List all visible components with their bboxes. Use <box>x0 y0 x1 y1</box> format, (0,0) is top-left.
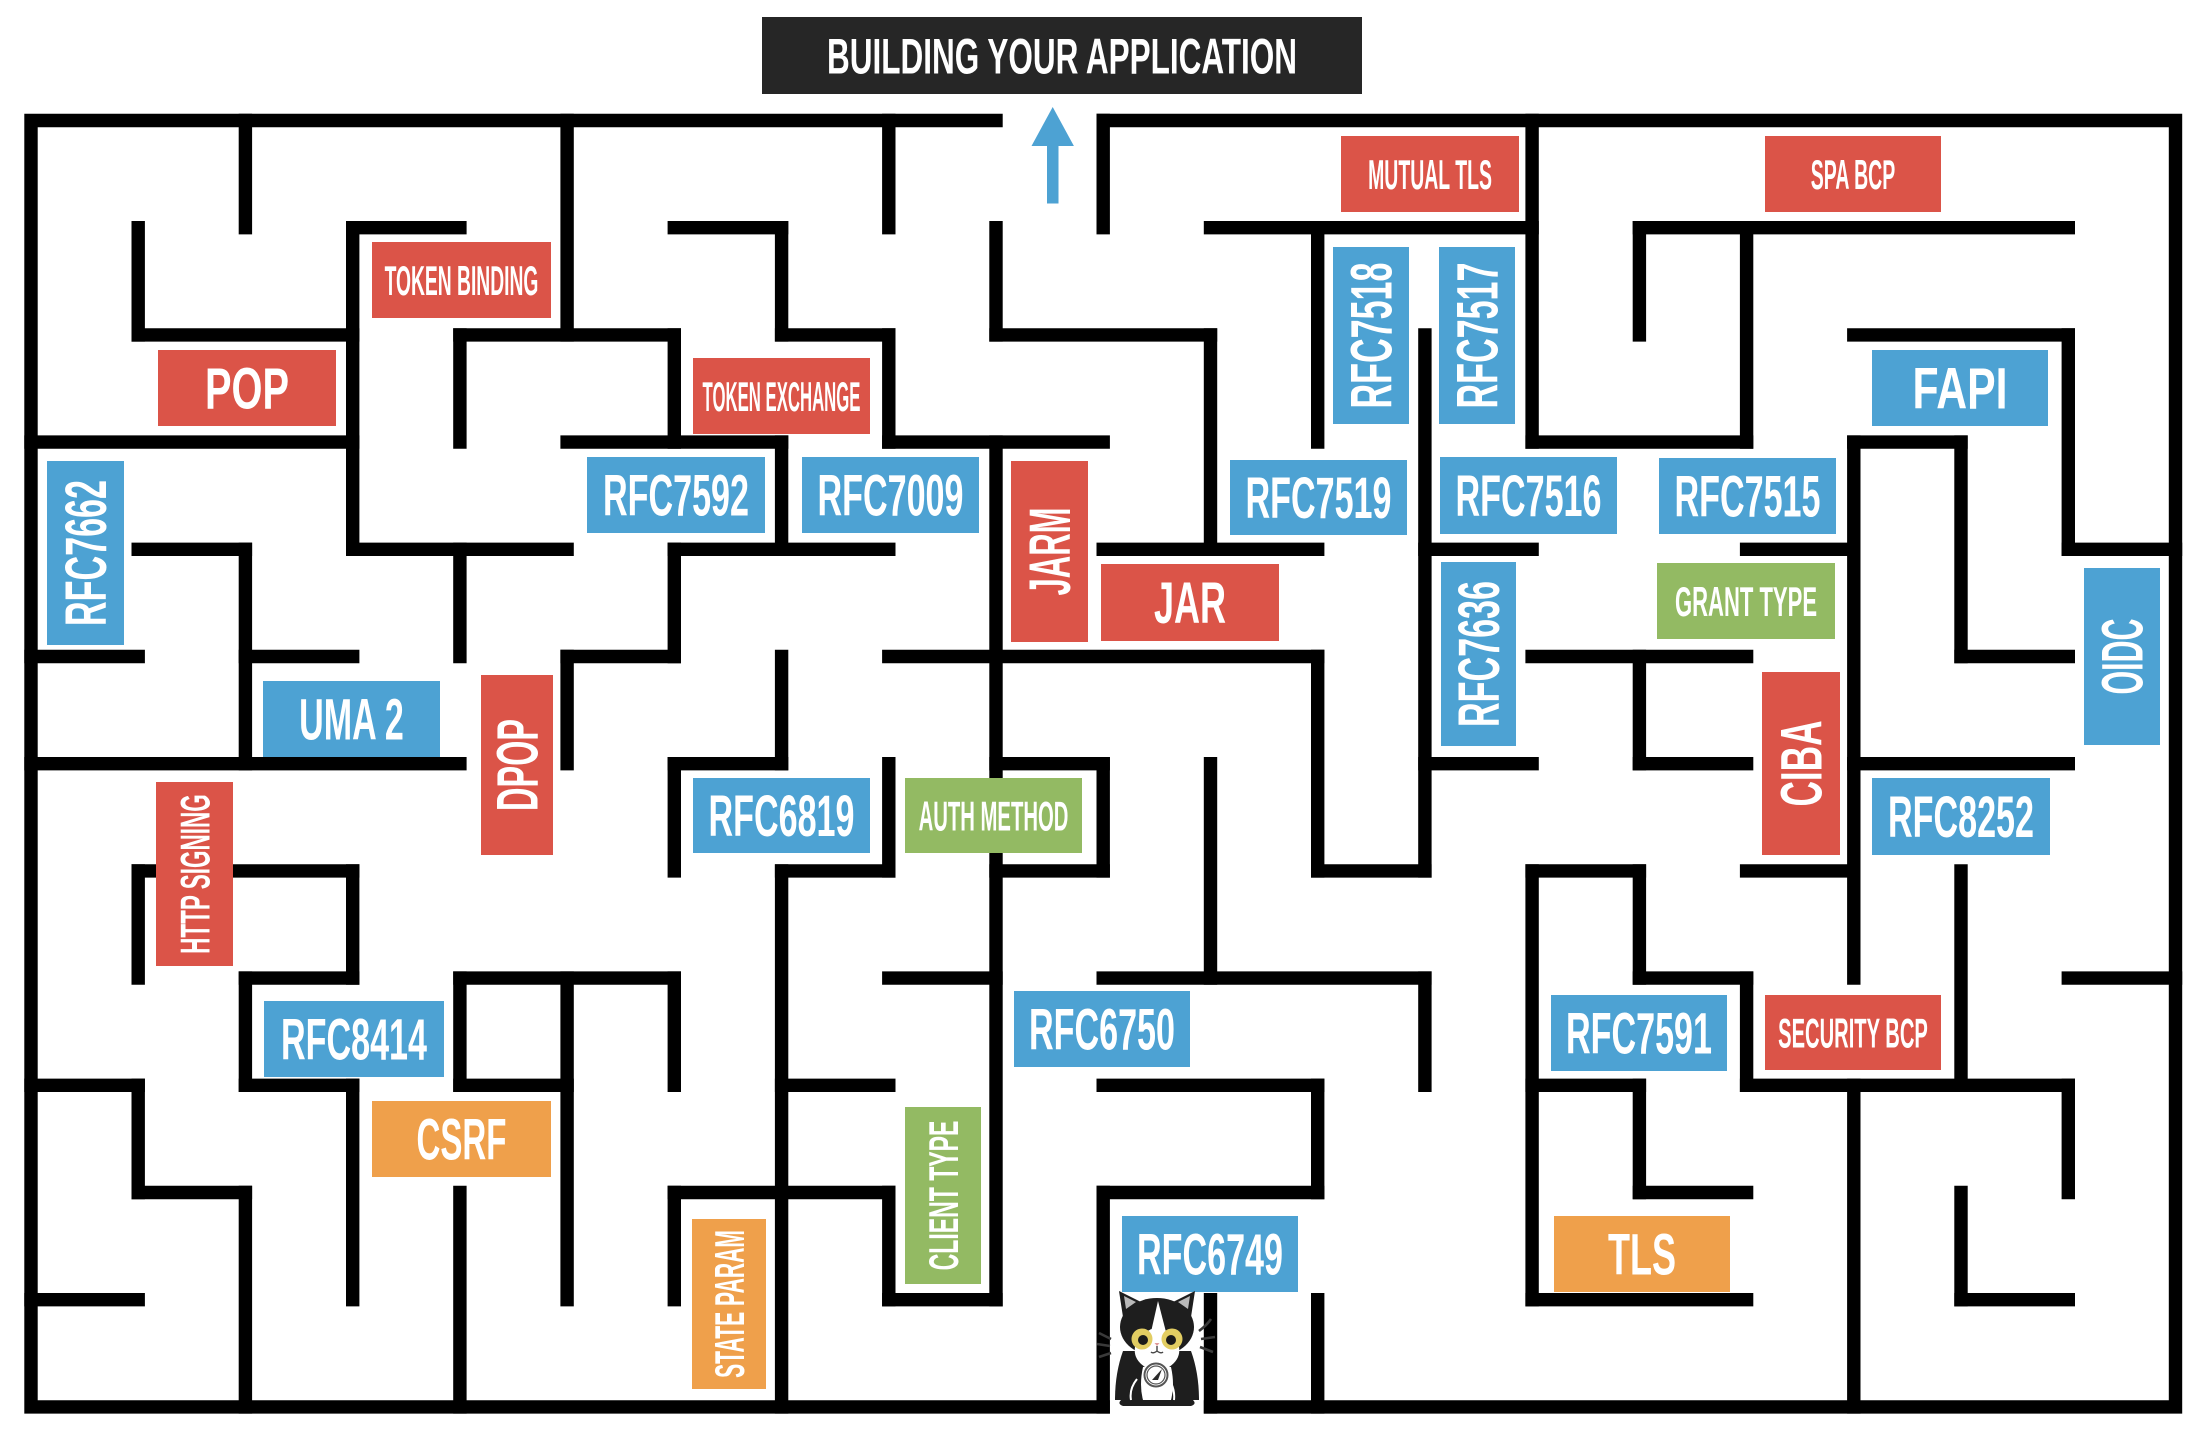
svg-text:RFC7009: RFC7009 <box>818 465 964 530</box>
svg-text:RFC7636: RFC7636 <box>1448 581 1513 727</box>
svg-text:RFC7662: RFC7662 <box>55 480 120 626</box>
svg-text:RFC7591: RFC7591 <box>1566 1003 1712 1068</box>
svg-text:AUTH METHOD: AUTH METHOD <box>919 792 1069 839</box>
svg-text:RFC7519: RFC7519 <box>1246 467 1392 532</box>
svg-text:RFC8414: RFC8414 <box>281 1009 427 1074</box>
svg-text:HTTP SIGNING: HTTP SIGNING <box>173 794 219 954</box>
svg-text:RFC8252: RFC8252 <box>1888 786 2034 851</box>
svg-text:MUTUAL TLS: MUTUAL TLS <box>1368 150 1492 197</box>
svg-text:RFC7518: RFC7518 <box>1341 263 1406 409</box>
svg-text:JARM: JARM <box>1018 508 1083 596</box>
svg-text:GRANT TYPE: GRANT TYPE <box>1675 580 1817 626</box>
svg-text:CSRF: CSRF <box>417 1108 507 1173</box>
svg-text:RFC6750: RFC6750 <box>1029 999 1175 1064</box>
svg-text:OIDC: OIDC <box>2090 619 2155 695</box>
svg-text:CLIENT TYPE: CLIENT TYPE <box>921 1121 968 1271</box>
svg-text:RFC6749: RFC6749 <box>1137 1224 1283 1289</box>
svg-text:SPA BCP: SPA BCP <box>1811 151 1895 198</box>
svg-text:JAR: JAR <box>1154 572 1226 637</box>
svg-text:RFC6819: RFC6819 <box>709 785 855 850</box>
svg-text:BUILDING YOUR APPLICATION: BUILDING YOUR APPLICATION <box>827 28 1297 84</box>
svg-text:RFC7517: RFC7517 <box>1447 263 1512 409</box>
svg-text:STATE PARAM: STATE PARAM <box>707 1230 754 1378</box>
svg-text:TLS: TLS <box>1608 1223 1676 1288</box>
svg-text:RFC7515: RFC7515 <box>1675 466 1821 531</box>
svg-text:FAPI: FAPI <box>1913 356 2008 421</box>
svg-text:CIBA: CIBA <box>1771 720 1835 806</box>
svg-text:TOKEN BINDING: TOKEN BINDING <box>385 256 539 304</box>
svg-text:TOKEN EXCHANGE: TOKEN EXCHANGE <box>703 373 861 420</box>
svg-text:RFC7516: RFC7516 <box>1456 465 1602 530</box>
svg-text:POP: POP <box>205 356 289 421</box>
svg-text:UMA 2: UMA 2 <box>299 688 404 753</box>
svg-text:SECURITY BCP: SECURITY BCP <box>1778 1009 1928 1056</box>
svg-text:DPOP: DPOP <box>485 719 550 811</box>
svg-text:RFC7592: RFC7592 <box>603 465 749 530</box>
